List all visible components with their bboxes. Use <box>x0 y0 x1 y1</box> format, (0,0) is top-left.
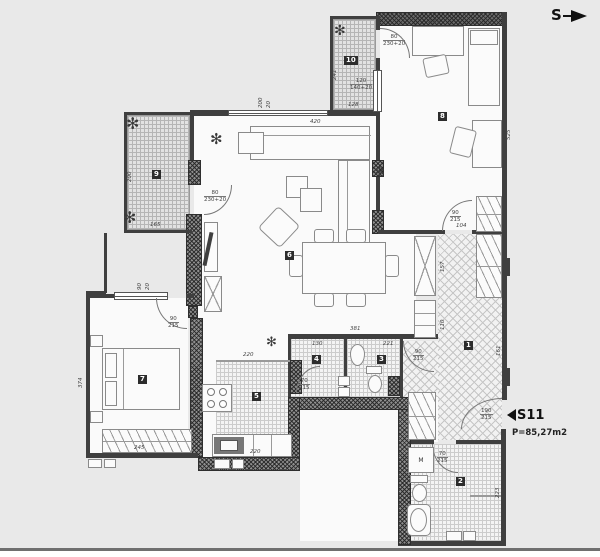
compass-label: S <box>551 8 562 23</box>
dim-bathroom-right: 223 <box>496 488 502 499</box>
sofa-top <box>250 126 370 160</box>
dim-hall-top: 104 <box>456 224 467 230</box>
dining-chair-6 <box>385 255 399 277</box>
pillar-living-left <box>188 160 201 185</box>
dining-chair-4 <box>346 293 366 307</box>
dim-bathroom-door: 70215 <box>437 451 448 465</box>
wall-terrace-north-left <box>330 16 333 112</box>
wardrobe-r8 <box>476 196 502 232</box>
dining-chair-3 <box>314 293 334 307</box>
wall-bump-b <box>505 368 510 386</box>
hall-wardrobe-right <box>476 234 502 298</box>
wall-bathroom-bottom <box>398 541 506 546</box>
dim-door-height: 230+20 <box>383 41 405 47</box>
wardrobe-main <box>102 429 192 453</box>
room-label-bedroom-second: 8 <box>438 112 447 121</box>
unit-id: S11 <box>517 409 544 422</box>
dining-table <box>302 242 386 294</box>
unit-area: P=85,27m2 <box>512 429 567 438</box>
dim-kitchen-top: 220 <box>243 353 254 359</box>
dim-bedroom-main-left: 374 <box>79 378 85 389</box>
dim-kitchen-sink: 220 <box>250 450 261 456</box>
wall-r8-bottom-a <box>378 230 445 234</box>
dim-window-height: 140+20 <box>350 85 372 91</box>
floor-plan: M 1 2 3 4 5 6 7 8 9 10 420 2.63 525 241 … <box>0 0 600 557</box>
washing-machine: M <box>408 447 434 473</box>
pillow-main-a <box>105 353 117 378</box>
dim-terrace-north-left: 241 <box>333 70 339 81</box>
dim-terrace-north-bottom: 128 <box>348 103 359 109</box>
stove <box>202 384 232 412</box>
wall-bedroom-main-left <box>86 294 90 458</box>
burner-icon <box>219 400 227 408</box>
nightstand-b <box>90 411 103 423</box>
pillar-wc <box>388 376 400 396</box>
meter-box-a <box>88 459 102 468</box>
plant-icon <box>123 210 136 226</box>
wall-bedroom-main-top-b <box>186 294 194 298</box>
dim-bedroom-main-door: 90215 <box>168 316 179 330</box>
dim-bathgroup-top: 381 <box>350 327 361 333</box>
pillow-r8 <box>470 30 498 45</box>
plant-icon <box>126 116 139 132</box>
desk-r8-top <box>412 26 464 56</box>
dim-hall-right: 161 <box>497 346 503 357</box>
shaft-box-a <box>338 376 350 386</box>
dim-door-width: 90 <box>413 349 424 356</box>
dim-door-height: 230+20 <box>204 197 226 203</box>
wall-lr-r8-b <box>376 177 380 210</box>
dim-door-width: 80 <box>383 34 405 41</box>
room-label-wc: 3 <box>377 355 386 364</box>
dim-door-width: 80 <box>204 190 226 197</box>
wall-wc-right <box>400 339 403 397</box>
bath-box-a <box>446 531 462 541</box>
meter-box-b <box>104 459 116 468</box>
dim-terrace-north-window: 120140+20 <box>350 78 372 92</box>
dim-hall-low: 110 <box>441 320 447 331</box>
dim-door-width: 70 <box>437 451 448 458</box>
dim-door-width: 90 <box>450 210 461 217</box>
shelf-cabinet-living <box>204 276 222 312</box>
hall-cabinet <box>414 300 436 338</box>
pillow-main-b <box>105 381 117 406</box>
kitchen-sink <box>214 437 244 454</box>
dim-wc-door: 90215 <box>413 349 424 363</box>
cabinet-shelf-b <box>415 325 435 326</box>
kitchen-box-b <box>232 459 244 469</box>
compass-line <box>563 15 571 17</box>
wall-living-left-a <box>190 112 194 160</box>
bed-main-line <box>123 349 124 409</box>
dining-chair-2 <box>346 229 366 243</box>
dim-living-door: 80230+20 <box>204 190 226 204</box>
room-label-hall: 1 <box>464 341 473 350</box>
kitchen-box-a <box>214 459 230 469</box>
compass-arrow-icon <box>571 10 587 22</box>
dim-bedroom-main-window-b: 20 <box>146 283 152 290</box>
wall-lr-r8-a <box>376 116 380 162</box>
bath-tub <box>407 504 431 536</box>
room-label-bathroom: 2 <box>456 477 465 486</box>
cabinet-shelf-a <box>415 313 435 314</box>
hall-closet-x <box>414 236 436 296</box>
entry-arrow-icon <box>507 409 516 421</box>
wall-bathroom-top-b <box>456 440 503 444</box>
wc-bowl <box>368 375 382 393</box>
bath-tub-inner <box>410 508 427 532</box>
side-table-a <box>238 132 264 154</box>
dim-door-height: 215 <box>299 385 310 391</box>
nightstand-a <box>90 335 103 347</box>
dim-living-window-b: 20 <box>267 101 273 108</box>
shaft-box-b <box>338 387 350 397</box>
window-terrace-north <box>373 70 382 112</box>
dim-door-width: 70 <box>299 378 310 385</box>
dim-bedroom-main-bottom: 245 <box>134 446 145 452</box>
dim-entry-door: 190215 <box>480 408 493 422</box>
dim-terrace-west-bottom: 165 <box>150 223 161 229</box>
wall-terrace-west-bottom <box>124 230 192 233</box>
dim-storage-door: 70215 <box>299 378 310 392</box>
room-label-kitchen: 5 <box>252 392 261 401</box>
wall-right-upper <box>502 12 507 234</box>
dim-terrace-north-door: 80230+20 <box>383 34 405 48</box>
dim-storage-width: 130 <box>312 342 323 348</box>
dim-door-width: 90 <box>168 316 179 323</box>
dim-window-width: 120 <box>350 78 372 85</box>
dim-sofa-length: 420 <box>310 120 321 126</box>
dim-wc-width: 221 <box>383 342 394 348</box>
dim-desk-r8: 2.63 <box>428 20 440 26</box>
plant-icon <box>266 336 277 349</box>
bath-wc-bowl <box>412 484 427 502</box>
room-label-terrace-north: 10 <box>344 56 358 65</box>
floor-core-void <box>300 410 398 541</box>
sofa-top-backline <box>251 135 371 136</box>
dim-door-height: 215 <box>480 415 493 421</box>
room-label-storage: 4 <box>312 355 321 364</box>
dim-door-height: 215 <box>168 323 179 329</box>
burner-icon <box>207 388 215 396</box>
room-label-bedroom-main: 7 <box>138 375 147 384</box>
wc-tank <box>366 366 382 374</box>
wall-living-left-b <box>188 306 198 318</box>
burner-icon <box>207 400 215 408</box>
wall-terrace-north-top <box>330 16 378 19</box>
hall-wardrobe-low <box>408 392 436 440</box>
room-label-living: 6 <box>285 251 294 260</box>
dim-terrace-west-left: 200 <box>128 172 134 183</box>
dim-bedroom-main-window-a: 90 <box>138 283 144 290</box>
plant-icon <box>210 132 223 147</box>
bath-wc-tank <box>410 475 428 483</box>
wall-bathroom-top-a <box>410 440 434 444</box>
bottom-margin <box>0 551 600 557</box>
wall-step-vertical <box>104 233 107 293</box>
counter-divider-b <box>271 435 272 456</box>
dim-door-height: 215 <box>437 458 448 464</box>
dim-door-width: 190 <box>480 408 493 415</box>
sink-basin <box>220 440 238 451</box>
wall-bedroom-main-bottom <box>86 453 198 458</box>
wall-kitchen-top-line <box>216 360 292 362</box>
wall-living-left-thick <box>186 214 202 306</box>
wall-core-top <box>288 397 410 410</box>
bed-r8 <box>468 28 500 106</box>
dim-bedroom-second-door: 90215 <box>450 210 461 224</box>
wall-bump-a <box>505 258 510 276</box>
wall-bathroom-right <box>501 429 506 543</box>
washing-machine-label: M <box>418 457 423 464</box>
room-label-terrace-west: 9 <box>152 170 161 179</box>
plant-icon <box>374 166 385 179</box>
dim-hall-mid: 157 <box>441 262 447 273</box>
dim-door-height: 215 <box>413 356 424 362</box>
dining-chair-1 <box>314 229 334 243</box>
dim-r8-right: 525 <box>507 130 513 141</box>
burner-icon <box>219 388 227 396</box>
dim-living-window-a: 200 <box>259 98 265 109</box>
desk-r8-right <box>472 120 502 168</box>
plant-icon <box>334 24 346 38</box>
wall-bedroom-second-top <box>376 12 506 26</box>
bath-box-b <box>463 531 476 541</box>
coffee-table-b <box>300 188 322 212</box>
window-living-top <box>228 110 328 116</box>
